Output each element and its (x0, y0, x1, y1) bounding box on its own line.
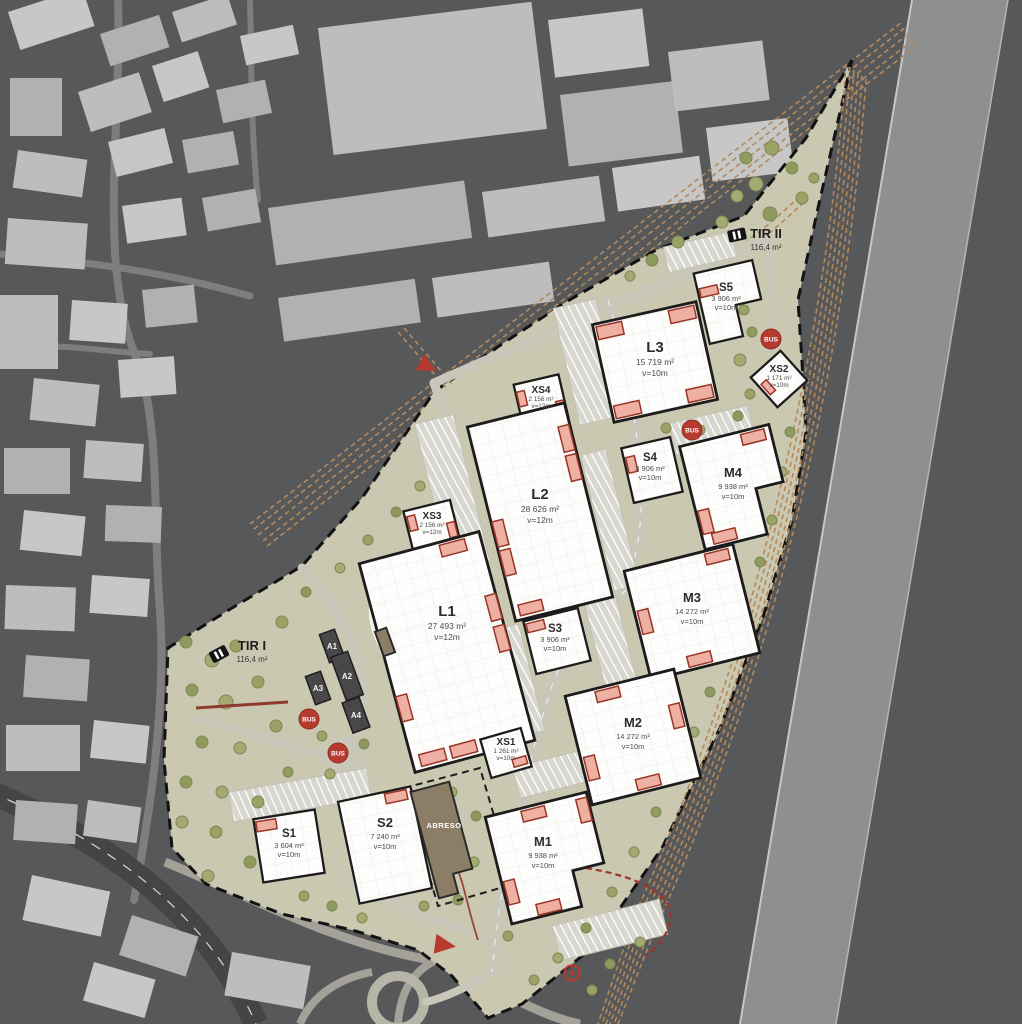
tree-icon (357, 913, 367, 923)
tree-icon (327, 901, 337, 911)
tree-icon (731, 190, 743, 202)
tree-icon (529, 975, 539, 985)
label-a1: A1 (327, 642, 338, 651)
bus-stop-icon: BUS (328, 743, 348, 763)
svg-text:v=10m: v=10m (496, 755, 515, 762)
svg-text:2 156 m²: 2 156 m² (419, 522, 444, 529)
tree-icon (415, 481, 425, 491)
bus-stop-icon: BUS (761, 329, 781, 349)
svg-text:116,4 m²: 116,4 m² (237, 655, 268, 664)
svg-text:2 156 m²: 2 156 m² (528, 396, 553, 403)
tree-icon (755, 557, 765, 567)
tree-icon (734, 354, 746, 366)
city-block (10, 78, 62, 136)
tree-icon (276, 616, 288, 628)
tree-icon (299, 891, 309, 901)
svg-text:S2: S2 (377, 815, 393, 830)
svg-text:116,4 m²: 116,4 m² (751, 243, 782, 252)
city-block (118, 356, 177, 398)
tree-icon (196, 736, 208, 748)
city-block (318, 2, 547, 155)
svg-text:1 171 m²: 1 171 m² (766, 375, 791, 382)
svg-text:v=10m: v=10m (532, 861, 555, 870)
tree-icon (786, 162, 798, 174)
loading-dock (256, 819, 277, 832)
svg-text:BUS: BUS (302, 716, 316, 723)
city-block (83, 800, 141, 843)
tree-icon (651, 807, 661, 817)
tree-icon (180, 776, 192, 788)
tree-icon (705, 687, 715, 697)
svg-text:v=10m: v=10m (769, 382, 788, 389)
tree-icon (629, 847, 639, 857)
svg-text:v=10m: v=10m (622, 742, 645, 751)
site-plan-page: L3 15 719 m² v=10m L2 28 626 m² v=12m L1… (0, 0, 1022, 1024)
city-block (105, 505, 162, 543)
svg-text:BUS: BUS (685, 427, 699, 434)
svg-text:XS3: XS3 (423, 511, 442, 522)
city-block (5, 218, 88, 269)
city-block (89, 575, 150, 617)
svg-text:1 261 m²: 1 261 m² (493, 748, 518, 755)
tree-icon (186, 684, 198, 696)
svg-text:9 938 m²: 9 938 m² (528, 851, 558, 860)
svg-text:v=12m: v=12m (422, 529, 441, 536)
city-block (23, 655, 90, 701)
city-block (548, 8, 649, 77)
svg-text:14 272 m²: 14 272 m² (675, 607, 709, 616)
label-a4: A4 (351, 711, 362, 720)
tree-icon (283, 767, 293, 777)
svg-text:9 938 m²: 9 938 m² (718, 482, 748, 491)
tree-icon (363, 535, 373, 545)
city-block (142, 285, 198, 328)
svg-text:L1: L1 (438, 603, 456, 620)
tree-icon (270, 720, 282, 732)
city-block (90, 720, 150, 764)
city-block (13, 800, 78, 844)
city-block (560, 81, 683, 166)
city-block (0, 295, 58, 369)
city-block (4, 585, 75, 631)
svg-text:XS4: XS4 (532, 385, 551, 396)
tree-icon (765, 141, 779, 155)
svg-text:3 604 m²: 3 604 m² (274, 841, 304, 850)
city-block (20, 510, 86, 556)
tree-icon (335, 563, 345, 573)
svg-text:M3: M3 (683, 590, 701, 605)
svg-text:v=12m: v=12m (531, 403, 550, 410)
city-block (668, 40, 770, 111)
tree-icon (317, 731, 327, 741)
tree-icon (301, 587, 311, 597)
svg-text:7 240 m²: 7 240 m² (370, 832, 400, 841)
svg-text:M1: M1 (534, 834, 552, 849)
tree-icon (252, 796, 264, 808)
tree-icon (471, 811, 481, 821)
city-block (30, 378, 100, 427)
tree-icon (646, 254, 658, 266)
svg-text:28 626 m²: 28 626 m² (521, 504, 559, 514)
svg-text:BUS: BUS (764, 336, 778, 343)
svg-text:v=10m: v=10m (374, 842, 397, 851)
svg-text:M4: M4 (724, 465, 743, 480)
tree-icon (661, 423, 671, 433)
tree-icon (202, 870, 214, 882)
svg-text:v=12m: v=12m (527, 515, 553, 525)
tree-icon (587, 985, 597, 995)
label-xs2: XS2 1 171 m² v=10m (766, 364, 791, 389)
svg-text:S3: S3 (548, 623, 562, 635)
bus-stop-icon: BUS (299, 709, 319, 729)
svg-text:TIR I: TIR I (238, 638, 266, 653)
tree-icon (176, 816, 188, 828)
svg-text:15 719 m²: 15 719 m² (636, 357, 674, 367)
svg-text:TIR II: TIR II (750, 226, 782, 241)
svg-text:v=12m: v=12m (434, 632, 460, 642)
label-xs3: XS3 2 156 m² v=12m (419, 511, 444, 536)
svg-text:v=10m: v=10m (544, 644, 567, 653)
svg-text:M2: M2 (624, 715, 642, 730)
tree-icon (581, 923, 591, 933)
svg-text:v=10m: v=10m (681, 617, 704, 626)
tree-icon (763, 207, 777, 221)
svg-text:3 906 m²: 3 906 m² (711, 294, 741, 303)
tree-icon (503, 931, 513, 941)
tree-icon (210, 826, 222, 838)
city-block (83, 440, 144, 482)
svg-text:v=10m: v=10m (642, 368, 668, 378)
tree-icon (739, 305, 749, 315)
svg-text:v=10m: v=10m (722, 492, 745, 501)
tree-icon (216, 786, 228, 798)
city-block (69, 300, 128, 344)
tree-icon (252, 676, 264, 688)
svg-text:14 272 m²: 14 272 m² (616, 732, 650, 741)
tree-icon (180, 636, 192, 648)
city-block (6, 725, 80, 771)
svg-text:L3: L3 (646, 339, 664, 356)
tree-icon (745, 389, 755, 399)
svg-text:XS2: XS2 (770, 364, 789, 375)
tree-icon (359, 739, 369, 749)
tree-icon (747, 327, 757, 337)
tree-icon (785, 427, 795, 437)
tree-icon (809, 173, 819, 183)
label-xs4: XS4 2 156 m² v=12m (528, 385, 553, 410)
svg-text:3 906 m²: 3 906 m² (540, 635, 570, 644)
svg-text:S1: S1 (282, 828, 297, 840)
bus-stop-icon: BUS (682, 420, 702, 440)
tree-icon (625, 271, 635, 281)
svg-text:v=10m: v=10m (278, 850, 301, 859)
tree-icon (796, 192, 808, 204)
svg-text:BUS: BUS (331, 750, 345, 757)
svg-text:v=10m: v=10m (639, 473, 662, 482)
svg-text:S4: S4 (643, 452, 658, 464)
tree-icon (672, 236, 684, 248)
tree-icon (419, 901, 429, 911)
svg-text:XS1: XS1 (497, 737, 516, 748)
city-block (4, 448, 70, 494)
tree-icon (733, 411, 743, 421)
tree-icon (635, 937, 645, 947)
site-plan-canvas: L3 15 719 m² v=10m L2 28 626 m² v=12m L1… (0, 0, 1022, 1024)
tree-icon (553, 953, 563, 963)
label-a2: A2 (342, 672, 353, 681)
svg-text:3 906 m²: 3 906 m² (635, 464, 665, 473)
tree-icon (740, 152, 752, 164)
tree-icon (391, 507, 401, 517)
tree-icon (716, 216, 728, 228)
svg-text:27 493 m²: 27 493 m² (428, 621, 466, 631)
tree-icon (605, 959, 615, 969)
tree-icon (607, 887, 617, 897)
svg-text:S5: S5 (719, 282, 734, 294)
label-xs1: XS1 1 261 m² v=10m (493, 737, 518, 762)
tree-icon (325, 769, 335, 779)
tree-icon (234, 742, 246, 754)
svg-text:L2: L2 (531, 486, 549, 503)
label-a3: A3 (313, 684, 324, 693)
label-abreso: ABRESO (426, 821, 461, 830)
svg-text:v=10m: v=10m (715, 303, 738, 312)
tree-icon (767, 515, 777, 525)
tree-icon (244, 856, 256, 868)
tree-icon (749, 177, 763, 191)
